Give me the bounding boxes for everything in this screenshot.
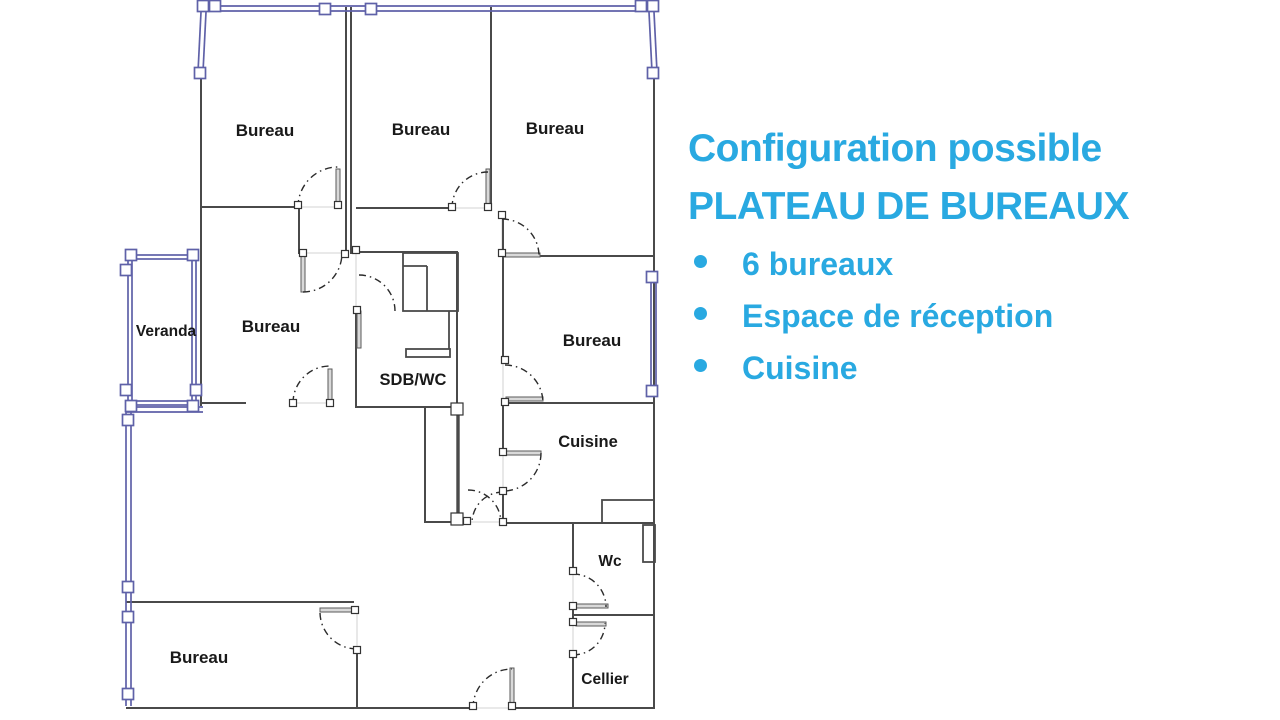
room-label-bureau-top-left: Bureau [236,121,295,140]
panel-title-line2: PLATEAU DE BUREAUX [688,178,1263,236]
bullet-dot-icon [694,255,707,268]
feature-item-reception: Espace de réception [688,300,1263,332]
bullet-dot-icon [694,307,707,320]
room-label-veranda: Veranda [136,323,197,340]
feature-label: 6 bureaux [742,246,893,282]
feature-item-kitchen: Cuisine [688,352,1263,384]
room-label-wc: Wc [598,553,622,570]
feature-item-offices: 6 bureaux [688,248,1263,280]
panel-title-line1: Configuration possible [688,120,1263,178]
cuisine-counter [602,500,654,523]
feature-label: Cuisine [742,350,858,386]
room-label-bureau-bottom-left: Bureau [170,648,229,667]
slide: Bureau Bureau Bureau Veranda Bureau SDB/… [0,0,1280,720]
room-label-bureau-top-middle: Bureau [392,120,451,139]
room-label-bureau-top-right: Bureau [526,119,585,138]
feature-list: 6 bureaux Espace de réception Cuisine [688,248,1263,384]
door-threshold-lines [293,207,573,708]
room-label-sdb-wc: SDB/WC [380,371,447,389]
room-label-cellier: Cellier [581,671,628,688]
room-label-bureau-center-left: Bureau [242,317,301,336]
feature-label: Espace de réception [742,298,1053,334]
bullet-dot-icon [694,359,707,372]
room-label-bureau-middle-right: Bureau [563,331,622,350]
info-panel: Configuration possible PLATEAU DE BUREAU… [688,120,1263,404]
room-label-cuisine: Cuisine [558,433,618,451]
sdb-vanity [406,349,450,357]
sdb-closet [403,253,458,311]
